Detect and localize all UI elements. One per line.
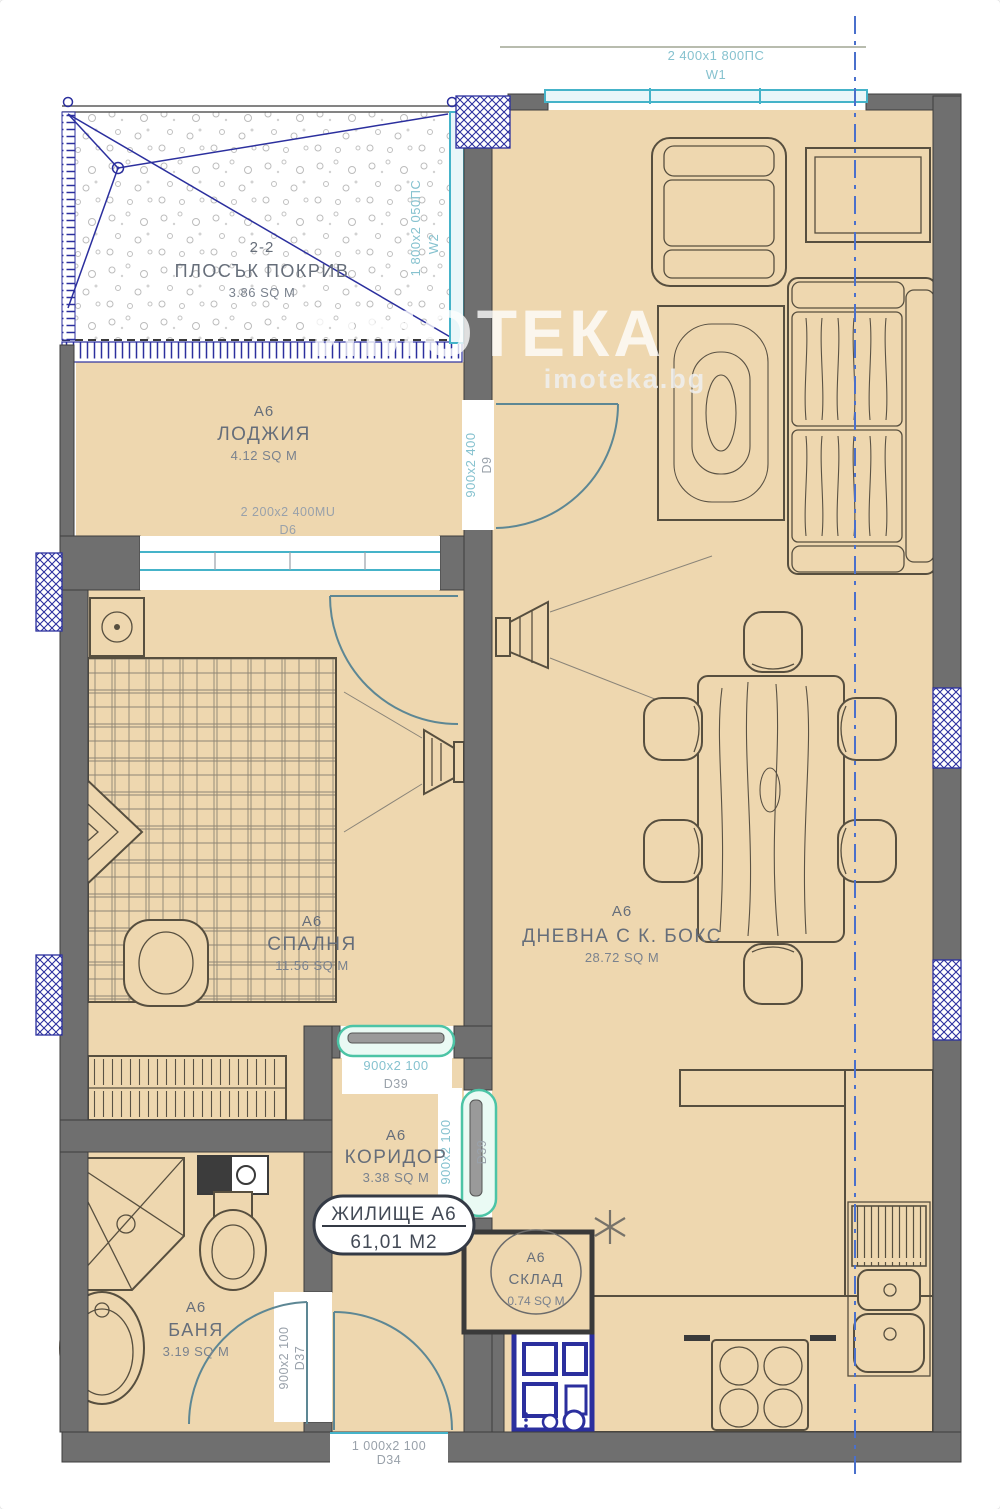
wall-segment: [304, 1422, 332, 1432]
window-w1-glass: [545, 90, 867, 102]
sink-drainboard: [852, 1206, 926, 1266]
d9-size-label: 900x2 400: [463, 432, 478, 497]
loggia-name: ЛОДЖИЯ: [217, 424, 311, 445]
loggia-code: A6: [254, 403, 274, 420]
bedroom-chair: [124, 920, 208, 1006]
bedroom-area: 11.56 SQ M: [275, 958, 348, 973]
storage-area: 0.74 SQ M: [507, 1294, 564, 1308]
d34-size-label: 1 000x2 100: [352, 1439, 426, 1453]
watermark-title: ИМОТЕКА: [311, 296, 665, 370]
wall-segment: [933, 96, 961, 1462]
wall-segment: [464, 528, 492, 1026]
corridor-code: A6: [386, 1127, 406, 1144]
pier-hatch: [36, 955, 62, 1035]
pier-hatch: [933, 688, 961, 768]
corridor-area: 3.38 SQ M: [363, 1170, 430, 1185]
dining-chair: [744, 612, 802, 672]
wall-segment: [492, 1332, 504, 1432]
loggia-area: 4.12 SQ M: [231, 448, 298, 463]
d6-size-label: 2 200x2 400MU: [241, 505, 336, 519]
d6-id-label: D6: [280, 523, 297, 537]
armchair: [652, 138, 786, 286]
living-code: A6: [612, 903, 632, 920]
w2-id-label: W2: [426, 234, 441, 255]
window-w1: 2 400x1 800ПС W1: [545, 48, 867, 104]
floor-plan: 2-2 ПЛОСЪК ПОКРИВ 3.86 SQ M 1 800x2 050П…: [0, 0, 1000, 1509]
kitchen-sink: [848, 1202, 930, 1376]
wall-segment: [60, 1120, 332, 1152]
wardrobe: [88, 1056, 286, 1120]
bedroom-code: A6: [302, 913, 322, 930]
storage-code: A6: [526, 1249, 545, 1265]
roof-name: ПЛОСЪК ПОКРИВ: [175, 261, 350, 281]
corridor-name: КОРИДОР: [345, 1147, 448, 1168]
dining-table: [698, 676, 844, 942]
nightstand: [90, 598, 144, 656]
pier-hatch: [456, 96, 510, 148]
d9-id-label: D9: [480, 457, 494, 474]
pier-hatch: [933, 960, 961, 1040]
wall-segment: [508, 94, 548, 110]
wall-segment: [60, 588, 88, 1432]
sliding-door-d39-top: 900x2 100 D39: [338, 1026, 454, 1094]
wall-segment: [62, 1432, 961, 1462]
living-name: ДНЕВНА С К. БОКС: [522, 926, 722, 947]
d34-id-label: D34: [377, 1453, 401, 1467]
dining-chair: [644, 820, 702, 882]
floor-plan-svg: 2-2 ПЛОСЪК ПОКРИВ 3.86 SQ M 1 800x2 050П…: [0, 0, 1000, 1509]
living-area: 28.72 SQ M: [585, 950, 659, 965]
toilet: [198, 1156, 268, 1290]
side-table: [806, 148, 930, 242]
bedroom-name: СПАЛНЯ: [267, 934, 356, 955]
watermark-site: imoteka.bg: [544, 364, 707, 394]
wall-segment: [60, 536, 140, 590]
wall-segment: [454, 1026, 492, 1058]
roof-code: 2-2: [250, 239, 275, 256]
w1-size-label: 2 400x1 800ПС: [668, 48, 765, 63]
w2-size-label: 1 800x2 050ПС: [408, 180, 423, 277]
d39-side-id-label: D39: [475, 1140, 489, 1164]
bathroom-name: БАНЯ: [168, 1320, 223, 1340]
unit-badge-area: 61,01 М2: [350, 1232, 437, 1253]
d39-top-size-label: 900x2 100: [363, 1058, 428, 1073]
sofa: [788, 278, 936, 574]
storage-name: СКЛАД: [508, 1271, 563, 1288]
roof-area: 3.86 SQ M: [229, 285, 296, 300]
unit-badge-title: ЖИЛИЩЕ A6: [331, 1204, 456, 1225]
d37-size-label: 900x2 100: [277, 1327, 291, 1390]
bathroom-code: A6: [186, 1299, 206, 1316]
storage-room: A6 СКЛАД 0.74 SQ M: [464, 1230, 592, 1332]
pier-hatch: [36, 553, 62, 631]
d37-id-label: D37: [293, 1346, 307, 1370]
washing-unit: [514, 1332, 592, 1431]
dining-chair: [838, 698, 896, 760]
coffee-table: [658, 306, 784, 520]
unit-badge: ЖИЛИЩЕ A6 61,01 М2: [314, 1196, 474, 1254]
d39-top-id-label: D39: [384, 1077, 408, 1091]
w1-id-label: W1: [706, 67, 727, 82]
dining-chair: [838, 820, 896, 882]
dining-chair: [744, 944, 802, 1004]
dining-chair: [644, 698, 702, 760]
bathroom-area: 3.19 SQ M: [163, 1344, 230, 1359]
